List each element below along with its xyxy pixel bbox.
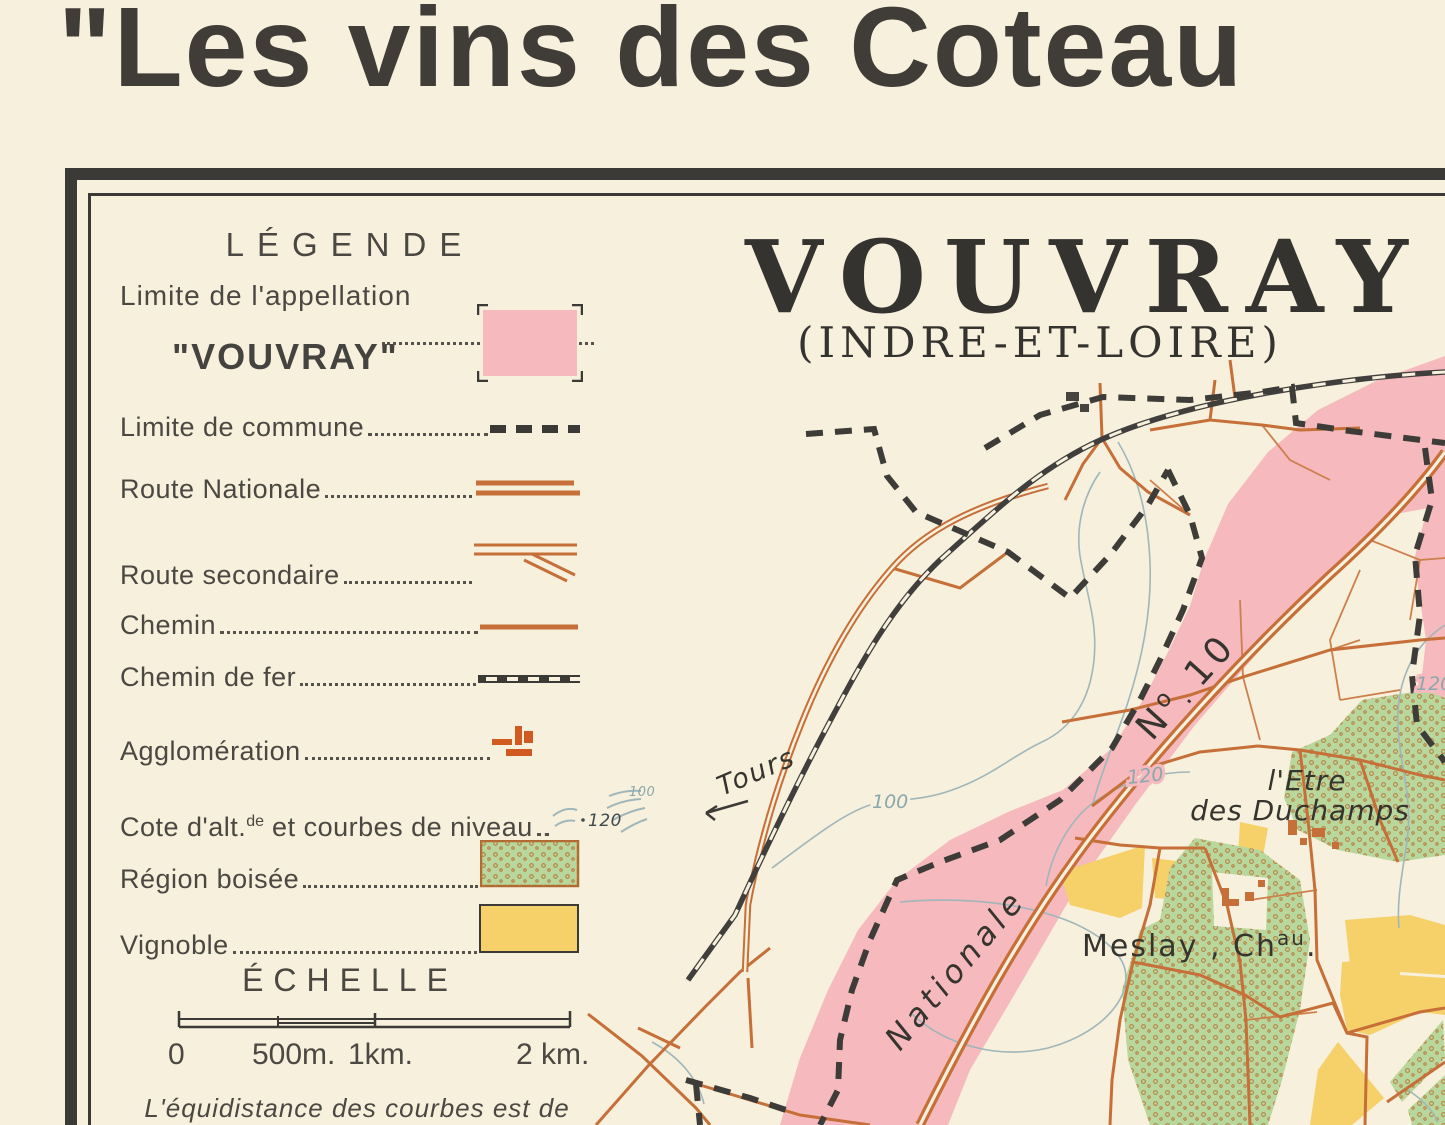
legend-label: Vignoble — [120, 930, 229, 961]
legend-item-chemin: Chemin — [120, 610, 580, 641]
label-etre-line2: des Duchamps — [1190, 794, 1410, 827]
legend-item-vignoble: Vignoble — [120, 904, 580, 961]
poster-title: "Les vins des Coteau — [58, 0, 1244, 112]
route-nationale-icon — [474, 474, 580, 505]
appellation-label: Limite de l'appellation — [120, 280, 411, 312]
appellation-name: "VOUVRAY" — [172, 336, 399, 378]
dotted-leader — [233, 951, 477, 954]
legend-item-region-boisee: Région boisée — [120, 840, 580, 895]
legend-label: Route secondaire — [120, 560, 340, 591]
legend-item-commune: Limite de commune — [120, 412, 580, 443]
dotted-leader — [325, 495, 472, 498]
legend-label: Route Nationale — [120, 474, 321, 505]
legend-label: Chemin — [120, 610, 216, 641]
label-contour-120-west: 120 — [1126, 763, 1164, 789]
legend-item-route-secondaire: Route secondaire — [120, 540, 580, 591]
railway-icon — [478, 662, 580, 693]
dotted-leader — [537, 833, 549, 836]
legend-title: LÉGENDE — [120, 226, 580, 264]
chemin-icon — [480, 610, 580, 641]
label-contour-100: 100 — [872, 791, 908, 813]
agglomeration-icon — [492, 724, 538, 767]
route-secondaire-icon — [474, 540, 580, 591]
wooded-area-swatch — [480, 840, 580, 895]
scale-tick-0: 0 — [168, 1038, 185, 1072]
dotted-leader — [368, 433, 488, 436]
commune-dash-icon — [490, 412, 580, 443]
scale-title: ÉCHELLE — [120, 962, 580, 999]
legend-item-cote-altitude: Cote d'alt.de et courbes de niveau 100 1… — [120, 782, 580, 843]
dotted-leader — [220, 631, 478, 634]
scale-bar — [175, 1010, 577, 1038]
scale-tick-2km: 2 km. — [516, 1038, 589, 1072]
vouvray-map: Tours Nationale No.10 l'Etre des Duchamp… — [580, 350, 1445, 1125]
legend-label: Cote d'alt.de et courbes de niveau — [120, 812, 533, 843]
dotted-leader — [300, 683, 476, 686]
legend-label: Agglomération — [120, 736, 301, 767]
dotted-leader — [303, 885, 478, 888]
vintage-wine-map-poster: "Les vins des Coteau LÉGENDE Limite de l… — [0, 0, 1445, 1125]
legend-item-appellation: Limite de l'appellation "VOUVRAY" — [120, 280, 580, 390]
appellation-pink-swatch — [477, 304, 583, 387]
tours-arrow-icon — [706, 801, 748, 820]
pink-swatch-icon — [477, 304, 583, 382]
legend-item-chemin-de-fer: Chemin de fer — [120, 662, 580, 693]
legend-item-agglomeration: Agglomération — [120, 724, 580, 767]
legend-label: Chemin de fer — [120, 662, 296, 693]
label-etre-line1: l'Etre — [1268, 764, 1347, 797]
legend-label: Limite de commune — [120, 412, 364, 443]
scale-note: L'équidistance des courbes est de — [127, 1093, 587, 1124]
vineyard-swatch — [479, 904, 580, 961]
label-tours: Tours — [713, 742, 801, 803]
dotted-leader — [305, 757, 490, 760]
scale-tick-500m: 500m. — [252, 1038, 335, 1072]
scale-tick-1km: 1km. — [348, 1038, 413, 1072]
label-contour-120-east: 120 — [1416, 673, 1445, 695]
legend-label: Région boisée — [120, 864, 299, 895]
dotted-leader — [344, 581, 472, 584]
legend-item-route-nationale: Route Nationale — [120, 474, 580, 505]
